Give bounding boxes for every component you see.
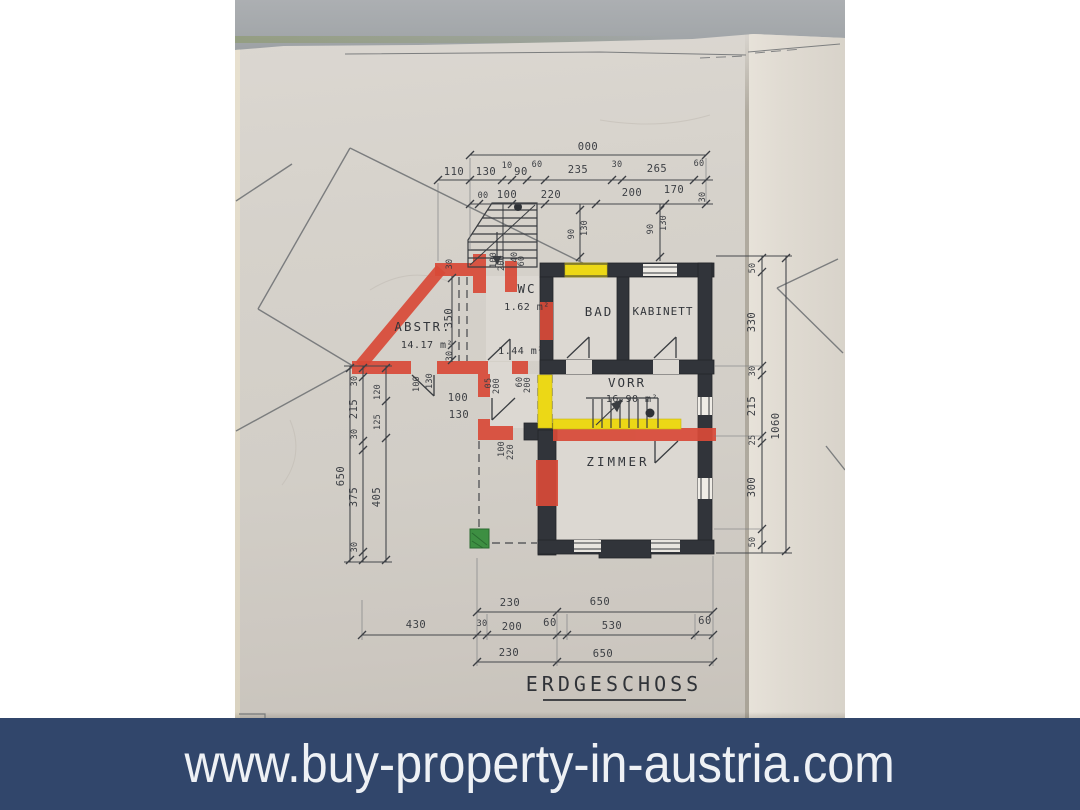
dim-label: 30	[350, 376, 360, 387]
dim-label: 530	[602, 620, 622, 632]
website-banner: www.buy-property-in-austria.com	[0, 718, 1080, 810]
room-area-lobby: 1.44 m²	[498, 346, 544, 357]
dim-label: 100	[448, 392, 468, 404]
dim-label: 90	[514, 166, 528, 178]
dim-label: 215	[348, 399, 360, 419]
room-label-vorr: VORR	[608, 375, 646, 390]
dim-label: 90	[567, 229, 577, 240]
dim-label: 265	[647, 163, 667, 175]
dim-label: 50	[748, 537, 758, 548]
dim-label: 375	[348, 487, 360, 507]
green-element	[470, 529, 489, 548]
room-label-abstr: ABSTR.	[394, 319, 451, 334]
dim-label: 130	[476, 166, 496, 178]
dim-label: 60	[694, 159, 705, 169]
dim-label: 30	[350, 542, 360, 553]
dim-label: 230	[499, 647, 519, 659]
dim-label: 00	[478, 191, 489, 201]
dim-label: 30	[445, 259, 455, 270]
dim-label: 100	[412, 376, 422, 392]
dim-label: 30	[612, 160, 623, 170]
red-diagonal-wall	[360, 269, 441, 366]
dim-label: 430	[406, 619, 426, 631]
room-area-wc: 1.62 m²	[504, 302, 550, 313]
dim-label: 220	[506, 444, 516, 460]
room-area-abstr: 14.17 m²	[401, 340, 453, 351]
dim-label: 30	[445, 351, 455, 362]
dim-label: 30	[748, 366, 758, 377]
sheet-fold-dashes	[700, 49, 802, 58]
dim-label: 60	[698, 615, 712, 627]
room-label-wc: WC	[517, 281, 536, 296]
dim-label: 130	[659, 215, 669, 231]
dim-label: 130	[449, 409, 469, 421]
dim-label: 200	[523, 377, 533, 393]
plan-title: ERDGESCHOSS	[526, 672, 702, 696]
dim-label: 200	[497, 255, 507, 271]
dim-label: 125	[373, 414, 383, 430]
dim-label: 405	[371, 487, 383, 507]
dim-label: 60	[532, 160, 543, 170]
room-label-bad: BAD	[585, 304, 614, 319]
dim-label: 30	[350, 429, 360, 440]
dim-label: 200	[622, 187, 642, 199]
dim-label: 30	[477, 619, 488, 629]
dim-label: 300	[746, 477, 758, 497]
dim-label: 110	[444, 166, 464, 178]
dim-label: 170	[664, 184, 684, 196]
dim-label: 60	[543, 617, 557, 629]
room-area-vorr: 16.90 m²	[606, 394, 658, 405]
dim-label: 25	[748, 435, 758, 446]
dim-label: 000	[578, 141, 598, 153]
room-label-zimmer: ZIMMER	[586, 454, 649, 469]
dim-label: 60	[517, 256, 527, 267]
dim-label: 90	[646, 224, 656, 235]
dim-label: 50	[748, 263, 758, 274]
dim-label: 30	[698, 192, 708, 203]
dim-label: 220	[541, 189, 561, 201]
dim-label: 130	[425, 373, 435, 389]
dim-label: 1060	[770, 412, 782, 439]
dim-label: 650	[590, 596, 610, 608]
room-label-kabinett: KABINETT	[633, 305, 694, 318]
floor-plan-drawing: 000 110 130 10 90 60 235 30 265 60 00 10…	[235, 0, 845, 722]
dim-label: 100	[497, 189, 517, 201]
dim-label: 650	[593, 648, 613, 660]
website-url-text: www.buy-property-in-austria.com	[185, 733, 895, 795]
dim-label: 330	[746, 312, 758, 332]
listing-image: 000 110 130 10 90 60 235 30 265 60 00 10…	[0, 0, 1080, 810]
dim-label: 215	[746, 396, 758, 416]
floorplan-photo: 000 110 130 10 90 60 235 30 265 60 00 10…	[235, 0, 845, 722]
dim-label: 235	[568, 164, 588, 176]
dim-label: 200	[502, 621, 522, 633]
dim-label: 650	[335, 466, 347, 486]
dim-label: 120	[373, 384, 383, 400]
dim-label: 200	[492, 378, 502, 394]
dim-label: 10	[502, 161, 513, 171]
dim-label: 230	[500, 597, 520, 609]
dim-label: 130	[580, 220, 590, 236]
plan-title-group: ERDGESCHOSS	[526, 672, 702, 700]
